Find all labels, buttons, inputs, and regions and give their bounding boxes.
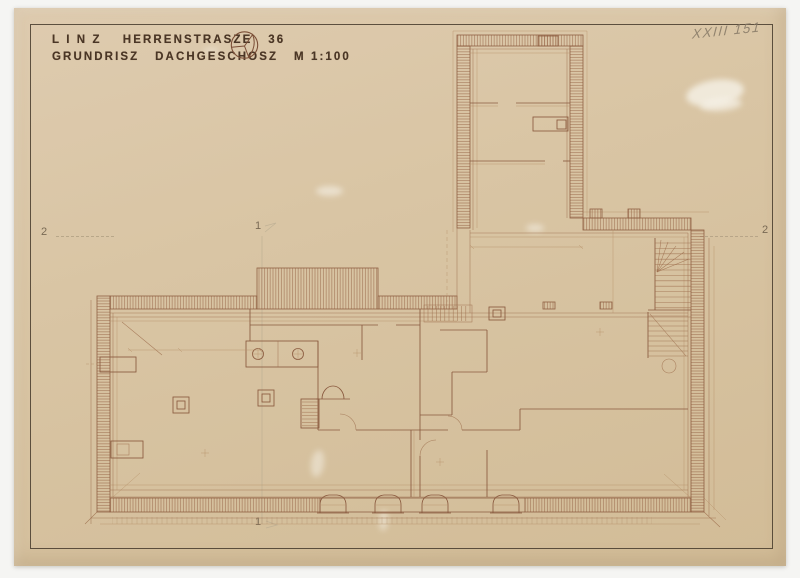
axis-marker-2-left: 2: [41, 226, 47, 238]
section-marker-1-bottom: 1: [255, 516, 261, 528]
section-marker-1-top: 1: [255, 220, 261, 232]
paper-stain: [316, 186, 343, 196]
north-symbol-icon: [228, 29, 262, 63]
title-block: L I N Z HERRENSTRASZE 36 GRUNDRISZ DACHG…: [52, 32, 351, 66]
title-line-1: L I N Z HERRENSTRASZE 36: [52, 32, 351, 49]
axis-line-right: [700, 236, 758, 237]
axis-marker-2-right: 2: [762, 224, 768, 236]
scanned-plan-sheet: L I N Z HERRENSTRASZE 36 GRUNDRISZ DACHG…: [0, 0, 800, 578]
sheet-border: [30, 24, 773, 549]
title-line-2: GRUNDRISZ DACHGESCHOSZ M 1:100: [52, 49, 351, 66]
paper-stain: [526, 224, 544, 232]
axis-line-left: [56, 236, 114, 237]
